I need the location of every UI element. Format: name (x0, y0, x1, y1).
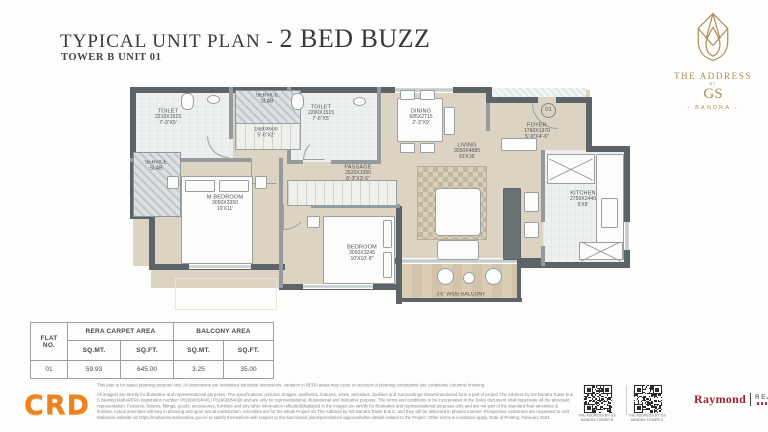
page-title: TYPICAL UNIT PLAN - 2 BED BUZZ (60, 24, 430, 54)
room-label-bedroom: BEDROOM3050X324510'X10'-8" (328, 244, 396, 263)
area-table-sqmt-header: SQ.MT. (174, 341, 224, 361)
raymond-tagline-script (757, 402, 768, 405)
area-value-balcony-sqmt: 3.25 (174, 361, 224, 379)
area-table: FLAT NO. RERA CARPET AREA BALCONY AREA S… (30, 322, 274, 379)
floor-plan: TOILET2210X15157'-3"X5' SERVICE SLAB 168… (55, 82, 667, 314)
disclaimer-block: This plan is for space planning purpose … (97, 383, 575, 429)
partition-wall (229, 87, 233, 139)
partition-wall (486, 103, 490, 131)
pillow (185, 180, 215, 192)
adjacent-unit-outline (175, 278, 277, 310)
logo-divider (750, 393, 751, 406)
wall-segment (586, 97, 592, 152)
dining-chair (400, 90, 415, 100)
area-table-balcony-group-header: BALCONY AREA (174, 323, 274, 341)
room-label-service-slab-left: SERVICE SLAB (139, 160, 173, 172)
brochure-page: TYPICAL UNIT PLAN - 2 BED BUZZ TOWER B U… (0, 0, 768, 432)
qr-code-tower-b (583, 384, 613, 414)
area-table-sqft-header: SQ.FT. (121, 341, 174, 361)
balcony-chair (437, 268, 454, 285)
room-label-toilet-1: TOILET2210X15157'-3"X5' (137, 108, 200, 127)
wardrobe (287, 180, 397, 206)
realty-wordmark: REALTY (755, 395, 768, 401)
crd-logo: CRD (24, 390, 90, 421)
area-table-rera-group-header: RERA CARPET AREA (68, 323, 174, 341)
room-label-living: LIVING3050X488510'X16' (433, 142, 501, 161)
qr-code-tower-c (633, 384, 663, 414)
balcony-parapet (400, 298, 522, 302)
qr-cell (661, 412, 662, 413)
brand-gs: GS (664, 86, 762, 103)
area-value-rera-sqft: 645.00 (121, 361, 174, 379)
room-label-passage: PASSAGE2520X10508'-3"X3'-5" (324, 164, 392, 183)
side-shelf (524, 192, 539, 212)
area-table-sqmt-header: SQ.MT. (68, 341, 121, 361)
bench-seat (437, 240, 479, 260)
unit-number-badge: 01 (541, 103, 556, 118)
washbasin (207, 95, 220, 104)
lobby-hatch (492, 88, 586, 97)
area-value-rera-sqmt: 59.93 (68, 361, 121, 379)
qr-cell (611, 412, 612, 413)
kitchen-hob (547, 154, 595, 184)
room-label-service-slab-top: SERVICE SLAB (250, 93, 284, 105)
brand-block: THE ADDRESS BY GS - BANDRA - (664, 10, 762, 111)
tv-unit (503, 188, 521, 260)
disclaimer-body: All image/s are strictly for illustrativ… (97, 392, 575, 421)
partition-wall (287, 160, 303, 164)
room-label-dining: DINING685X27152'-3"X9' (390, 108, 453, 127)
area-value-flat-no: 01 (31, 361, 68, 379)
raymond-wordmark: Raymond (694, 392, 746, 407)
dining-chair (400, 143, 415, 153)
nightstand (255, 176, 267, 189)
partition-wall (377, 87, 381, 160)
window (624, 222, 630, 250)
brand-name: THE ADDRESS (664, 71, 762, 81)
utility-unit (579, 242, 623, 260)
room-label-foyer: FOYER1760X13705'-9"X4'-6" (506, 122, 569, 141)
realty-block: REALTY (755, 395, 768, 405)
partition-wall (541, 246, 545, 266)
page-subtitle: TOWER B UNIT 01 (61, 52, 162, 63)
balcony-table (463, 272, 475, 284)
qr-divider (626, 385, 627, 415)
wall-segment (486, 97, 538, 103)
area-table-flat-header: FLAT NO. (31, 323, 68, 361)
room-label-toilet-2: TOILET2290X15157'-6"X5' (290, 104, 353, 123)
nightstand (307, 216, 320, 228)
area-table-sqft-header: SQ.FT. (224, 341, 274, 361)
sofa (435, 188, 481, 236)
brand-emblem-lotus-icon (687, 10, 739, 64)
room-label-master-bedroom: M.BEDROOM3050X335010'X11' (191, 194, 259, 213)
window (189, 264, 251, 269)
wall-segment (543, 262, 626, 268)
balcony-chair (485, 268, 502, 285)
room-label-balcony: 3'6" WIDE BALCONY (406, 292, 517, 298)
qr-caption-tower-b: THE ADDRESS BY GS BANDRA TOWER B (575, 414, 619, 423)
side-shelf (524, 222, 539, 238)
disclaimer-line-1: This plan is for space planning purpose … (97, 383, 575, 389)
window (303, 284, 373, 289)
nightstand (167, 176, 179, 189)
page-title-emphasis: 2 BED BUZZ (280, 24, 431, 54)
wall-segment (149, 213, 155, 270)
qr-caption-tower-c: THE ADDRESS BY GS BANDRA TOWER C (625, 414, 669, 423)
washbasin (353, 97, 366, 106)
page-title-prefix: TYPICAL UNIT PLAN - (60, 31, 280, 53)
pillow (219, 180, 249, 192)
area-value-balcony-sqft: 35.00 (224, 361, 274, 379)
room-label-niche: 1680X6005'-6"X2' (241, 127, 292, 139)
room-label-kitchen: KITCHEN2750X24409'X8' (552, 190, 615, 209)
brand-location: - BANDRA - (664, 105, 762, 111)
partition-wall (541, 150, 545, 222)
dining-chair (420, 90, 435, 100)
raymond-realty-logo: Raymond REALTY (694, 392, 768, 407)
